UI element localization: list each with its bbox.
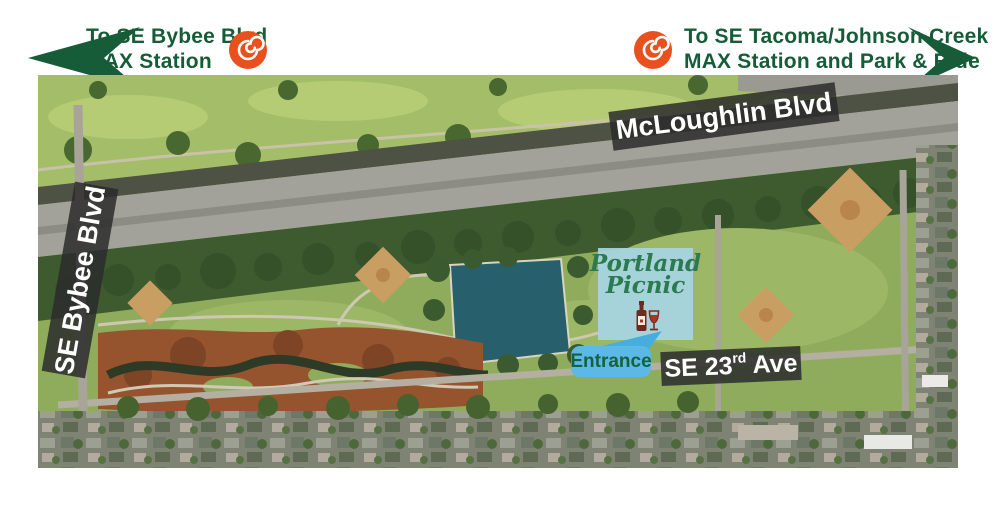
road-label-ordinal: rd <box>732 349 747 366</box>
road-label-se-23rd-ave: SE 23rd Ave <box>660 346 801 386</box>
max-line-icon <box>228 30 268 70</box>
max-line-icon <box>633 30 673 70</box>
entrance-label-text: Entrance <box>570 351 651 373</box>
aerial-photo-art <box>38 75 958 468</box>
event-map-page: To SE Bybee Blvd MAX Station To SE Tacom… <box>0 0 1000 505</box>
logo-title: Portland Picnic <box>590 253 701 297</box>
road-label-text: Ave <box>746 349 798 380</box>
aerial-photo <box>38 75 958 468</box>
logo-line2: Picnic <box>590 275 701 297</box>
road-label-text: SE 23 <box>664 351 733 383</box>
entrance-label: Entrance <box>571 346 651 377</box>
